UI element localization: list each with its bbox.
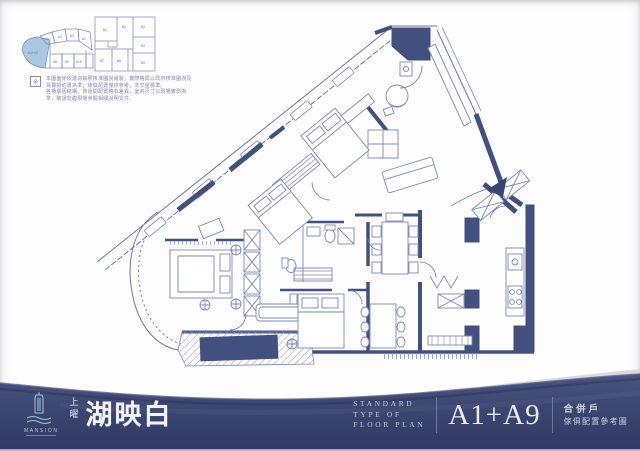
tower-logo-icon [24,391,54,427]
sink [307,227,320,236]
toilet [325,230,335,243]
standard-type-label: STANDARD TYPE OF FLOOR PLAN [353,399,425,431]
fan-building-key-plan: A1+A9 A5 A4 A3 A2 A8 A9 A10 [20,26,96,74]
unit-description: 合併戶 傢俱配置參考圖 [564,403,628,428]
furniture-reference-label: 傢俱配置參考圖 [564,416,628,428]
master-bedroom [287,294,344,349]
seal-icon: ※ [30,76,41,87]
brand-en-label: MANSION [24,428,59,434]
project-title: 湖映白 [86,393,173,432]
logo: MANSION [24,391,59,436]
highlight-label: A1+A9 [28,51,38,55]
std-line-2: TYPE OF [353,410,425,421]
unit-label: A8 [53,60,57,64]
laundry-closet [294,268,332,281]
brand-vertical-text: 上曜 [68,397,79,421]
unit-label: A10 [76,60,82,64]
std-line-3: FLOOR PLAN [353,420,425,431]
unit-label: A9 [65,60,69,64]
kitchen-sink [508,254,522,270]
entry [400,62,412,76]
planter [200,335,279,362]
footer-right-block: STANDARD TYPE OF FLOOR PLAN A1+A9 合併戶 傢俱… [353,397,628,433]
desk [199,218,224,238]
nightstand [290,294,297,304]
brand-block: MANSION 上曜 湖映白 [24,391,173,436]
unit-label: A5 [45,37,49,41]
shaft [392,28,430,60]
breakfast-table [361,304,405,348]
divider [552,397,553,433]
lamp-symbol [231,245,241,309]
dining-room [372,213,418,274]
brochure-page: A1+A9 A5 A4 A3 A2 A8 A9 A10 B1 B2 B3 B4 … [0,0,640,451]
brand-vertical-label: 上曜 [68,397,79,421]
brand-rule [26,435,56,436]
unit-code: A1+A9 [448,399,540,432]
std-line-1: STANDARD [353,399,425,410]
merged-unit-label: 合併戶 [564,403,628,416]
floor-plan [86,14,548,372]
sofa [382,157,438,193]
dining-table [382,222,408,274]
footer-band: MANSION 上曜 湖映白 STANDARD TYPE OF FLOOR PL… [0,365,640,451]
bedroom-upper [272,108,369,196]
divider [436,397,437,433]
kitchen [428,170,530,345]
unit-label: A4 [58,35,62,39]
bedroom-left [170,218,260,316]
wardrobe-column [244,230,260,316]
unit-label: A3 [70,34,74,38]
wardrobe-mark [430,276,458,288]
table [370,304,396,348]
